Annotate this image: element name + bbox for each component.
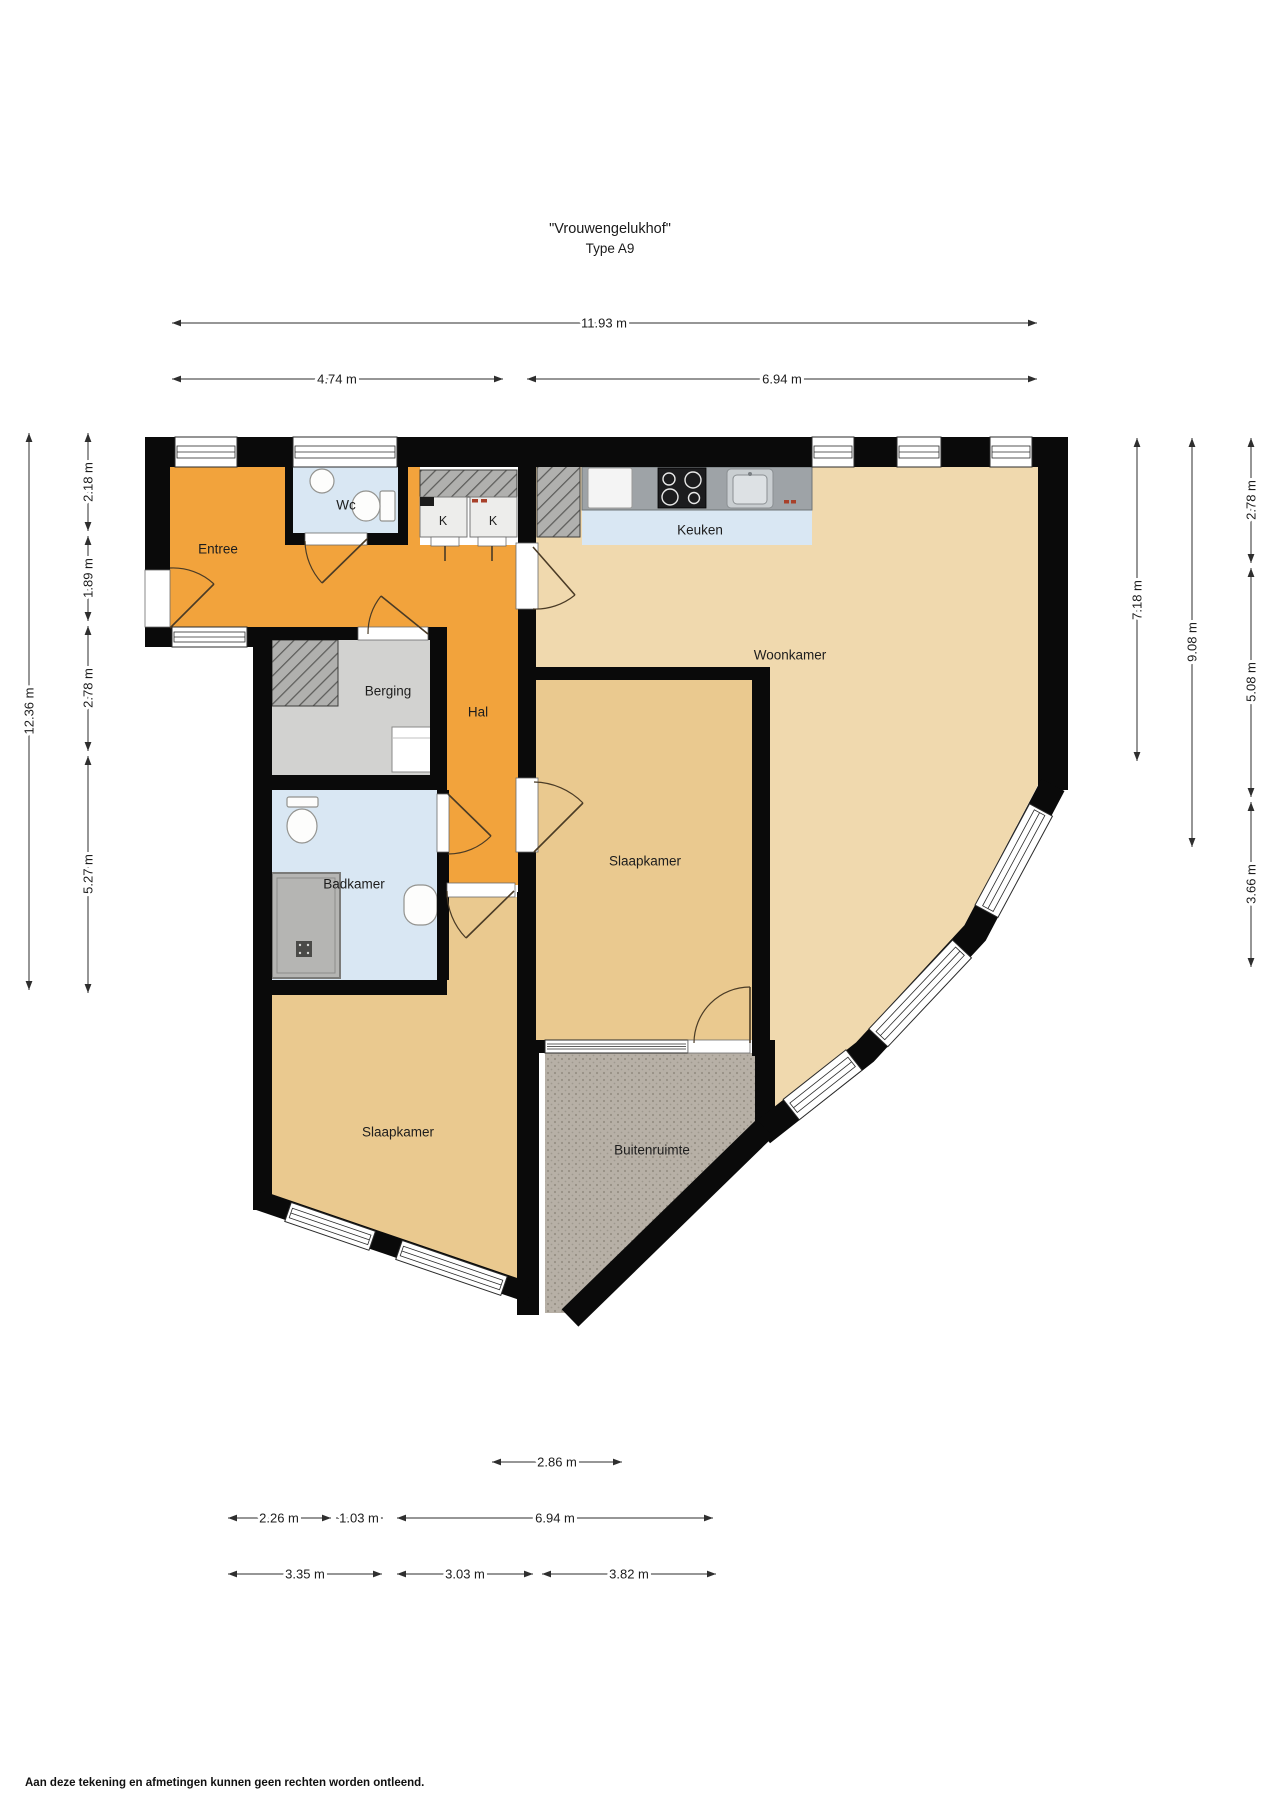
disclaimer-text: Aan deze tekening en afmetingen kunnen g…: [25, 1777, 424, 1789]
dim-bottom-r2a: 2.26 m: [259, 1511, 299, 1526]
dim-left-seg2: 1.89 m: [81, 558, 96, 598]
window-balcony-band: [545, 1040, 688, 1053]
dim-top-left: 4.74 m: [317, 372, 357, 387]
shaft-berging: [272, 640, 338, 706]
wall-slaapmid-east: [752, 667, 770, 1040]
shower-drain-icon: [296, 941, 312, 957]
dim-left-total: 12.36 m: [22, 688, 37, 735]
drain-dot: [299, 944, 301, 946]
window-woonkamer-top-3: [990, 437, 1032, 467]
wall-west-mid: [253, 627, 272, 1210]
wall-kitchen-west-upper: [518, 437, 536, 543]
bath-washbasin: [404, 885, 437, 925]
faucet-icon: [748, 472, 752, 476]
wall-berging-east: [430, 627, 447, 790]
wc-handbasin: [310, 469, 334, 493]
label-berging: Berging: [365, 684, 412, 699]
dim-right-seg3: 3.66 m: [1244, 864, 1259, 904]
wall-kitchen-west-mid: [518, 608, 536, 670]
wall-bad-east-lower: [437, 846, 449, 980]
drain-dot: [299, 952, 301, 954]
label-keuken: Keuken: [677, 523, 723, 538]
dim-left-seg4: 5.27 m: [81, 854, 96, 894]
window-woonkamer-top-1: [812, 437, 854, 467]
shaft-kitchen: [537, 465, 580, 537]
drain-dot: [307, 952, 309, 954]
counter-red-mark-2: [791, 500, 796, 504]
wall-right: [1038, 437, 1068, 790]
drain-dot: [307, 944, 309, 946]
wall-buiten-west: [517, 1053, 539, 1315]
floorplan-svg: "Vrouwengelukhof" Type A9: [0, 0, 1280, 1811]
dim-bottom-r3c: 3.82 m: [609, 1567, 649, 1582]
floorplan-page: "Vrouwengelukhof" Type A9: [0, 0, 1280, 1811]
dim-bottom-r2b: 1.03 m: [339, 1511, 379, 1526]
label-slaapkamer-middle: Slaapkamer: [609, 854, 682, 869]
shaft-above-closets: [420, 470, 517, 497]
closet-appliance: [420, 497, 434, 506]
dim-top-total: 11.93 m: [581, 316, 627, 331]
plan-subtitle: Type A9: [586, 241, 635, 256]
sink-basin: [733, 475, 767, 504]
wall-slaapleft-east: [517, 892, 536, 1053]
dim-right-seg1: 2.78 m: [1244, 480, 1259, 520]
dim-bottom-balcony: 2.86 m: [537, 1455, 577, 1470]
window-wc-top: [293, 437, 397, 467]
closet-right-doorframe: [478, 537, 506, 546]
wc-toilet-bowl: [352, 491, 380, 521]
wall-slaapmid-west-upper: [518, 670, 536, 778]
dim-right-overall: 9.08 m: [1185, 622, 1200, 662]
label-entree: Entree: [198, 542, 238, 557]
wall-slaapmid-west-lower: [518, 852, 536, 892]
wc-toilet-tank: [380, 491, 395, 521]
dim-right-living: 7.18 m: [1130, 580, 1145, 620]
label-closet-right: K: [489, 514, 498, 528]
label-closet-left: K: [439, 514, 448, 528]
wall-slaapmid-top: [536, 667, 770, 680]
dim-bottom-r2c: 6.94 m: [535, 1511, 575, 1526]
label-hal: Hal: [468, 705, 488, 720]
label-buitenruimte: Buitenruimte: [614, 1143, 690, 1158]
dim-left-seg3: 2.78 m: [81, 668, 96, 708]
corridor-sliver-floor: [408, 467, 420, 545]
counter-red-mark-1: [784, 500, 789, 504]
wall-wc-right: [398, 467, 408, 545]
wall-bad-south: [253, 980, 447, 995]
closet-red-mark-1: [472, 499, 478, 503]
wall-berging-top-a: [272, 627, 358, 640]
dim-bottom-r3a: 3.35 m: [285, 1567, 325, 1582]
window-entree-bottom: [172, 627, 247, 647]
label-slaapkamer-left: Slaapkamer: [362, 1125, 435, 1140]
dim-left-seg1: 2.18 m: [81, 462, 96, 502]
closet-red-mark-2: [481, 499, 487, 503]
label-wc: Wc: [336, 498, 356, 513]
bath-toilet-bowl: [287, 809, 317, 843]
label-badkamer: Badkamer: [323, 877, 385, 892]
wall-berging-bad-divider: [272, 775, 430, 790]
dim-top-right: 6.94 m: [762, 372, 802, 387]
label-woonkamer: Woonkamer: [754, 648, 827, 663]
dim-right-seg2: 5.08 m: [1244, 662, 1259, 702]
window-entree-top: [175, 437, 237, 467]
window-woonkamer-top-2: [897, 437, 941, 467]
fridge: [588, 468, 632, 508]
plan-title: "Vrouwengelukhof": [549, 221, 671, 237]
dim-bottom-r3b: 3.03 m: [445, 1567, 485, 1582]
closet-left-doorframe: [431, 537, 459, 546]
bath-toilet-tank: [287, 797, 318, 807]
